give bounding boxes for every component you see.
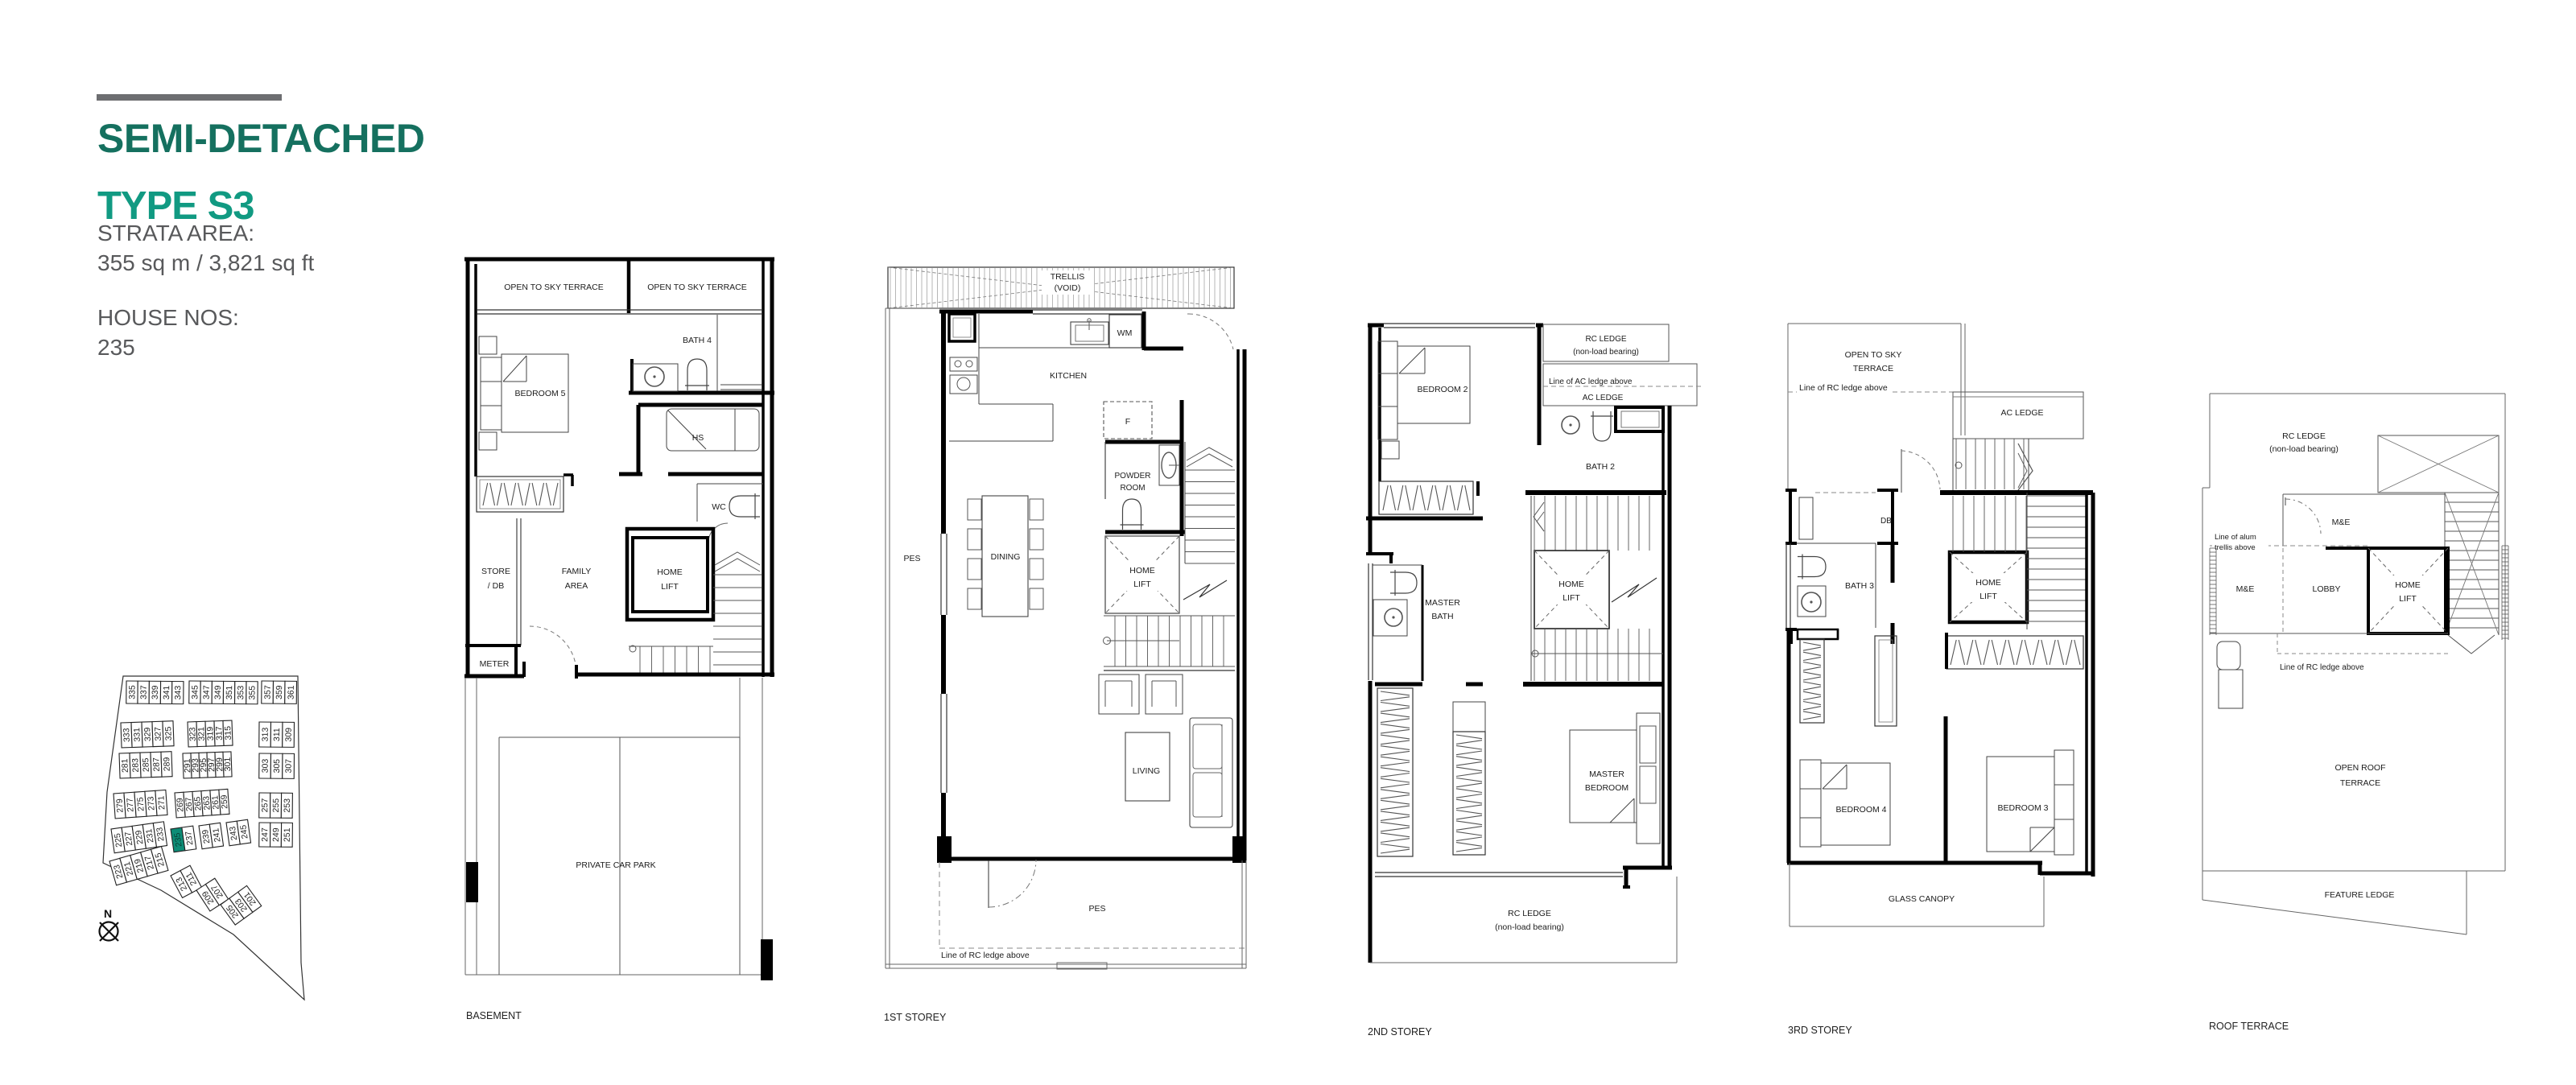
svg-text:331: 331: [132, 728, 142, 742]
svg-text:HOME: HOME: [1975, 578, 2001, 588]
svg-text:341: 341: [162, 685, 171, 699]
svg-text:BEDROOM 5: BEDROOM 5: [514, 389, 565, 398]
svg-text:301: 301: [223, 757, 233, 771]
svg-text:333: 333: [122, 728, 132, 742]
svg-text:287: 287: [151, 757, 162, 772]
svg-text:(non-load bearing): (non-load bearing): [1495, 922, 1564, 932]
svg-text:315: 315: [223, 726, 233, 741]
svg-text:325: 325: [163, 726, 174, 741]
svg-text:281: 281: [120, 758, 130, 773]
svg-text:307: 307: [284, 759, 294, 774]
svg-text:MASTER: MASTER: [1589, 769, 1624, 779]
svg-text:349: 349: [213, 685, 223, 699]
svg-text:305: 305: [272, 759, 282, 774]
svg-text:LOBBY: LOBBY: [2312, 584, 2340, 594]
svg-text:FAMILY: FAMILY: [562, 567, 592, 576]
svg-text:247: 247: [260, 827, 270, 842]
svg-text:357: 357: [263, 685, 273, 699]
svg-text:(VOID): (VOID): [1055, 283, 1081, 293]
svg-text:LIFT: LIFT: [1979, 592, 1997, 601]
svg-text:309: 309: [284, 728, 294, 742]
svg-text:355: 355: [247, 686, 257, 700]
svg-text:251: 251: [283, 827, 292, 842]
svg-text:RC LEDGE: RC LEDGE: [2282, 431, 2326, 441]
svg-text:353: 353: [236, 686, 246, 700]
svg-text:BEDROOM 2: BEDROOM 2: [1417, 385, 1468, 394]
svg-text:TERRACE: TERRACE: [1853, 364, 1893, 373]
svg-text:313: 313: [261, 728, 270, 742]
svg-text:345: 345: [190, 685, 200, 699]
svg-text:F: F: [1125, 417, 1130, 427]
svg-text:STORE: STORE: [481, 567, 510, 576]
svg-text:LIVING: LIVING: [1133, 766, 1160, 776]
svg-text:N: N: [104, 907, 112, 920]
svg-text:M&E: M&E: [2236, 584, 2255, 594]
svg-text:PES: PES: [1088, 904, 1105, 914]
svg-text:3RD STOREY: 3RD STOREY: [1788, 1025, 1852, 1036]
svg-text:335: 335: [127, 685, 137, 699]
svg-text:PRIVATE CAR PARK: PRIVATE CAR PARK: [576, 860, 655, 870]
svg-text:Line of RC ledge above: Line of RC ledge above: [1799, 383, 1888, 393]
svg-text:ROOF TERRACE: ROOF TERRACE: [2209, 1021, 2289, 1032]
svg-text:273: 273: [146, 796, 156, 811]
svg-text:HOME: HOME: [2395, 580, 2421, 590]
svg-text:283: 283: [130, 758, 141, 773]
svg-text:235: 235: [172, 832, 184, 848]
svg-text:STRATA AREA:: STRATA AREA:: [97, 221, 254, 245]
svg-text:GLASS CANOPY: GLASS CANOPY: [1889, 894, 1955, 904]
svg-text:277: 277: [125, 798, 135, 812]
svg-text:Line of RC ledge above: Line of RC ledge above: [2280, 663, 2364, 672]
svg-text:(non-load bearing): (non-load bearing): [1573, 348, 1639, 357]
svg-text:279: 279: [114, 798, 125, 813]
svg-text:RC LEDGE: RC LEDGE: [1508, 909, 1551, 918]
svg-text:249: 249: [271, 827, 281, 842]
svg-text:241: 241: [211, 827, 222, 843]
svg-text:BATH 2: BATH 2: [1586, 462, 1615, 472]
svg-text:HOME: HOME: [657, 567, 683, 577]
svg-text:OPEN TO SKY TERRACE: OPEN TO SKY TERRACE: [647, 283, 747, 292]
svg-text:KITCHEN: KITCHEN: [1050, 371, 1087, 381]
svg-text:LIFT: LIFT: [1563, 593, 1580, 603]
svg-text:351: 351: [225, 685, 234, 699]
svg-text:245: 245: [238, 824, 250, 840]
svg-text:METER: METER: [480, 659, 510, 669]
svg-text:LIFT: LIFT: [1133, 580, 1151, 589]
svg-text:259: 259: [219, 794, 229, 809]
svg-text:DINING: DINING: [991, 552, 1021, 562]
svg-text:329: 329: [142, 727, 153, 741]
svg-text:355 sq m / 3,821 sq ft: 355 sq m / 3,821 sq ft: [97, 250, 314, 275]
svg-text:M&E: M&E: [2332, 518, 2351, 527]
svg-text:339: 339: [151, 685, 160, 699]
svg-text:HOUSE NOS:: HOUSE NOS:: [97, 305, 239, 330]
svg-text:RC LEDGE: RC LEDGE: [1585, 335, 1626, 344]
svg-text:DB: DB: [1880, 517, 1892, 526]
svg-text:SEMI-DETACHED: SEMI-DETACHED: [97, 116, 424, 161]
svg-text:275: 275: [135, 797, 146, 811]
svg-text:HOME: HOME: [1558, 580, 1584, 589]
svg-text:Line of alum: Line of alum: [2215, 533, 2256, 542]
svg-text:Line of RC ledge above: Line of RC ledge above: [941, 951, 1030, 960]
svg-text:FEATURE LEDGE: FEATURE LEDGE: [2325, 890, 2395, 900]
svg-text:347: 347: [202, 685, 212, 699]
svg-text:1ST STOREY: 1ST STOREY: [884, 1012, 947, 1023]
svg-text:289: 289: [162, 757, 172, 771]
svg-text:PES: PES: [903, 554, 920, 563]
svg-text:303: 303: [261, 759, 270, 774]
svg-text:TRELLIS: TRELLIS: [1051, 272, 1085, 282]
svg-text:337: 337: [139, 685, 149, 699]
svg-text:OPEN TO SKY: OPEN TO SKY: [1845, 350, 1902, 360]
svg-text:255: 255: [271, 798, 281, 813]
svg-text:BATH: BATH: [1431, 612, 1453, 621]
svg-text:MASTER: MASTER: [1425, 598, 1460, 608]
svg-text:237: 237: [184, 831, 195, 846]
svg-text:253: 253: [283, 798, 292, 813]
svg-text:LIFT: LIFT: [2399, 594, 2417, 604]
svg-text:OPEN ROOF: OPEN ROOF: [2334, 763, 2385, 773]
svg-text:AREA: AREA: [565, 581, 588, 591]
svg-text:311: 311: [272, 728, 282, 741]
svg-text:HS: HS: [692, 433, 704, 443]
svg-text:BASEMENT: BASEMENT: [466, 1010, 522, 1021]
svg-text:WM: WM: [1117, 328, 1133, 338]
svg-text:AC LEDGE: AC LEDGE: [2000, 408, 2043, 418]
svg-text:BEDROOM 4: BEDROOM 4: [1835, 805, 1886, 815]
svg-text:235: 235: [97, 335, 135, 360]
svg-text:233: 233: [155, 827, 166, 842]
svg-text:(non-load bearing): (non-load bearing): [2269, 444, 2339, 454]
svg-text:361: 361: [287, 685, 296, 699]
svg-text:BATH 3: BATH 3: [1845, 581, 1874, 591]
svg-text:Line of AC ledge above: Line of AC ledge above: [1549, 377, 1633, 386]
svg-text:359: 359: [275, 685, 284, 699]
svg-text:LIFT: LIFT: [661, 582, 679, 592]
svg-text:BATH 4: BATH 4: [683, 336, 712, 345]
svg-text:OPEN TO SKY TERRACE: OPEN TO SKY TERRACE: [504, 283, 604, 292]
svg-text:257: 257: [260, 798, 270, 813]
svg-text:2ND STOREY: 2ND STOREY: [1368, 1026, 1432, 1038]
svg-text:AC LEDGE: AC LEDGE: [1583, 394, 1624, 402]
svg-text:HOME: HOME: [1129, 566, 1155, 576]
svg-text:POWDER: POWDER: [1115, 472, 1151, 481]
svg-text:ROOM: ROOM: [1120, 484, 1145, 493]
svg-text:WC: WC: [712, 502, 726, 512]
svg-text:285: 285: [141, 757, 151, 772]
svg-text:BEDROOM: BEDROOM: [1585, 783, 1629, 793]
svg-text:BEDROOM 3: BEDROOM 3: [1997, 803, 2048, 813]
svg-text:/ DB: / DB: [488, 581, 504, 591]
svg-text:343: 343: [173, 686, 183, 700]
svg-text:TERRACE: TERRACE: [2340, 778, 2380, 788]
svg-text:trellis above: trellis above: [2215, 543, 2256, 552]
svg-text:271: 271: [156, 795, 167, 810]
svg-text:327: 327: [153, 727, 163, 741]
